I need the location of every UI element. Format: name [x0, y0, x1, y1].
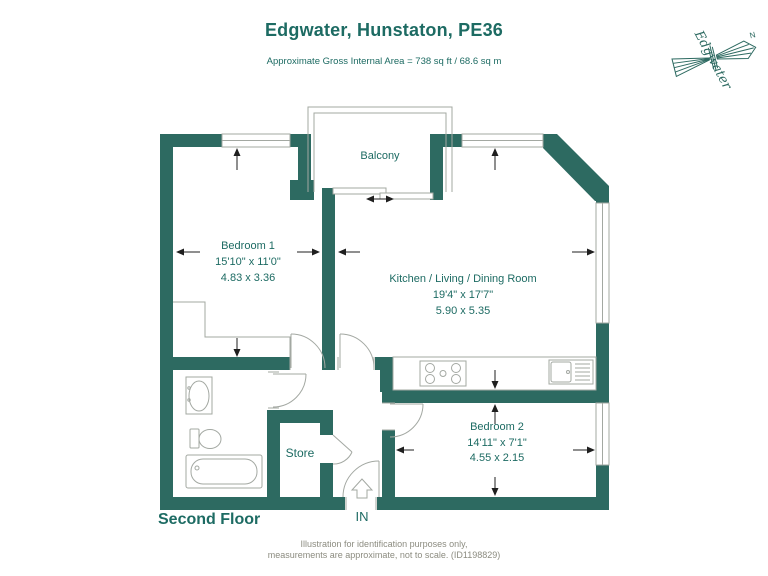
window-kitchen-top — [462, 134, 543, 147]
room-label-bedroom1: Bedroom 1 — [221, 240, 275, 252]
room-dim-imperial-bedroom2: 14'11" x 7'1" — [467, 437, 527, 449]
room-dim-imperial-bedroom1: 15'10" x 11'0" — [215, 256, 281, 268]
floor-title: Second Floor — [158, 511, 260, 529]
bathtub-icon — [186, 455, 262, 488]
room-dim-imperial-kitchen: 19'4" x 17'7" — [433, 289, 493, 301]
wardrobe-outline — [173, 302, 290, 357]
window-kitchen-right — [596, 203, 609, 323]
door-store — [333, 435, 352, 464]
room-label-store: Store — [286, 446, 315, 460]
disclaimer: Illustration for identification purposes… — [0, 539, 768, 561]
disclaimer-line1: Illustration for identification purposes… — [0, 539, 768, 550]
window-bedroom2-right — [596, 403, 609, 465]
room-label-balcony: Balcony — [360, 150, 400, 162]
room-dim-metric-bedroom1: 4.83 x 3.36 — [221, 272, 275, 284]
entrance-arrow-icon — [352, 479, 372, 498]
room-label-bedroom2: Bedroom 2 — [470, 421, 524, 433]
door-bedroom1 — [290, 334, 325, 370]
door-kitchen — [338, 334, 374, 370]
toilet-icon — [190, 429, 221, 449]
floor-plan: Balcony Bedroom 1 15'10" x 11'0" 4.83 x … — [0, 0, 768, 576]
room-dim-metric-kitchen: 5.90 x 5.35 — [436, 305, 490, 317]
room-label-kitchen: Kitchen / Living / Dining Room — [389, 273, 536, 285]
entrance-label: IN — [356, 509, 369, 524]
window-bedroom1-top — [222, 134, 290, 147]
sliding-door — [333, 188, 433, 199]
disclaimer-line2: measurements are approximate, not to sca… — [0, 550, 768, 561]
room-dim-metric-bedroom2: 4.55 x 2.15 — [470, 452, 524, 464]
basin-icon — [186, 377, 212, 414]
door-bathroom — [268, 372, 306, 408]
